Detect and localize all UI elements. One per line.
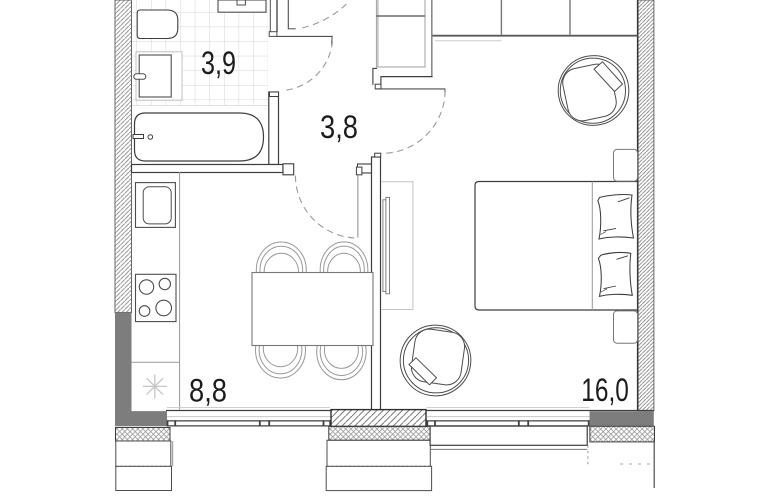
svg-text:8,8: 8,8 (189, 372, 227, 408)
svg-text:3,8: 3,8 (320, 109, 358, 145)
svg-text:16,0: 16,0 (581, 372, 629, 408)
svg-text:3,9: 3,9 (201, 45, 236, 81)
